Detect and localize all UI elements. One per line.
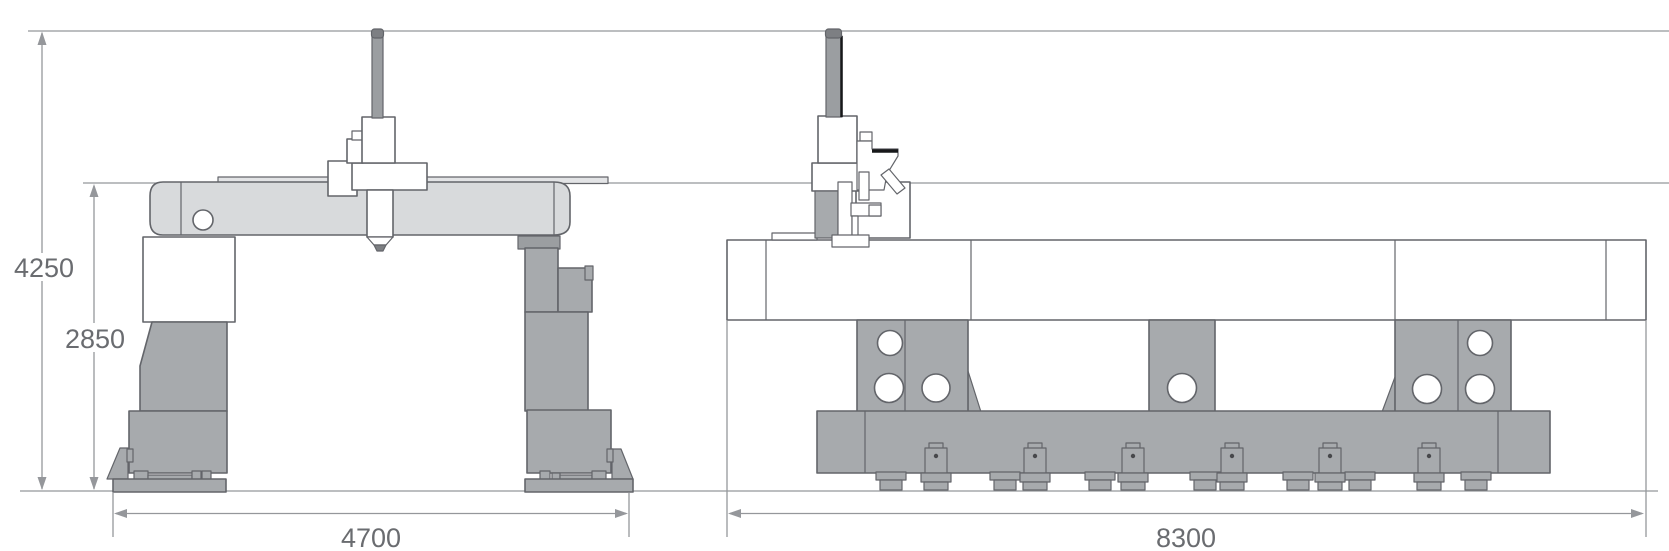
side-view <box>727 29 1646 490</box>
carriage-plate <box>772 233 817 240</box>
gantry-machine-drawing: 4250 2850 4700 8300 <box>0 0 1669 551</box>
arrowhead-left-icon <box>728 509 741 518</box>
dimension-overall-height: 4250 <box>14 32 74 491</box>
arrowhead-up-icon <box>90 184 99 197</box>
pedestal-body <box>857 320 968 412</box>
left-column-body <box>140 322 227 411</box>
side-block-step <box>585 266 593 280</box>
spindle-ram-side <box>826 36 842 117</box>
right-column-base <box>527 410 611 473</box>
head-housing <box>362 117 395 163</box>
lightening-hole <box>878 331 903 356</box>
carriage-slab <box>838 182 852 238</box>
spindle-nose <box>374 245 386 251</box>
anchor-bolt-foot <box>1217 443 1247 490</box>
lightening-hole <box>922 374 950 402</box>
ram-top-cap-side <box>826 29 842 38</box>
z-ram-taper <box>367 237 393 245</box>
pedestal-middle <box>1149 320 1215 412</box>
right-base-wedge <box>612 449 633 479</box>
support-rod <box>852 216 858 236</box>
pedestal-right <box>1382 320 1511 412</box>
machine-bed <box>727 240 1646 320</box>
right-column-upper-block <box>525 248 558 312</box>
slider-bar <box>859 172 869 200</box>
arrowhead-down-icon <box>38 477 47 490</box>
z-ram-lower <box>367 190 393 237</box>
support-pad-foot <box>1283 472 1313 490</box>
support-pad-foot <box>990 472 1020 490</box>
right-column <box>518 236 633 492</box>
anchor-bolt-foot <box>1414 443 1444 490</box>
technical-drawing-canvas: 4250 2850 4700 8300 <box>0 0 1669 551</box>
dimension-label-side-length: 8300 <box>1156 523 1216 551</box>
anchor-bolt-foot <box>1118 443 1148 490</box>
head-tab-side <box>860 132 872 141</box>
beam-column-connector <box>518 236 560 249</box>
arrowhead-up-icon <box>38 32 47 46</box>
pedestal-chamfer <box>1382 377 1395 412</box>
pedestal-body <box>1395 320 1511 412</box>
spindle-head-side <box>772 29 910 247</box>
lightening-hole <box>1168 374 1197 403</box>
lightening-hole <box>1466 375 1495 404</box>
dimension-label-overall-height: 4250 <box>14 253 74 283</box>
carriage-column <box>815 191 838 238</box>
anchor-bolt-foot <box>921 443 951 490</box>
left-column-base <box>129 411 227 473</box>
spindle-ram <box>372 36 383 118</box>
cross-saddle <box>352 163 427 190</box>
support-pad-foot <box>876 472 906 490</box>
left-column-upper-box <box>143 237 235 322</box>
support-pad-foot <box>1461 472 1491 490</box>
head-base-plate <box>832 235 869 247</box>
front-view <box>107 29 633 492</box>
right-column-body <box>525 312 588 411</box>
dimension-label-front-width: 4700 <box>341 523 401 551</box>
lightening-hole <box>1468 331 1493 356</box>
right-foot-plate <box>525 479 633 492</box>
arrowhead-right-icon <box>1631 509 1644 518</box>
anchor-bolt-foot <box>1020 443 1050 490</box>
support-pad-foot <box>1345 472 1375 490</box>
support-pad-foot <box>1190 472 1220 490</box>
dimension-front-width: 4700 <box>113 493 629 551</box>
lightening-hole <box>1413 375 1442 404</box>
beam-hole <box>193 210 213 230</box>
arrowhead-down-icon <box>90 477 99 490</box>
lower-bar-block <box>869 205 881 216</box>
head-housing-side <box>818 116 857 163</box>
support-pad-foot <box>1085 472 1115 490</box>
left-column <box>107 237 235 492</box>
ram-top-cap <box>372 29 384 38</box>
arrowhead-left-icon <box>114 509 127 518</box>
right-base-wedge-tab <box>607 449 613 462</box>
left-base-wedge-tab <box>127 449 133 462</box>
arrowhead-right-icon <box>615 509 628 518</box>
anchor-bolt-foot <box>1315 443 1345 490</box>
left-foot-plate <box>113 479 226 492</box>
left-base-wedge <box>107 448 128 479</box>
pedestal-chamfer <box>968 371 981 412</box>
head-step-block <box>347 139 363 163</box>
dimension-label-beam-height: 2850 <box>65 324 125 354</box>
pedestal-left <box>857 320 981 412</box>
dimension-beam-height: 2850 <box>65 184 125 490</box>
lightening-hole <box>875 374 904 403</box>
